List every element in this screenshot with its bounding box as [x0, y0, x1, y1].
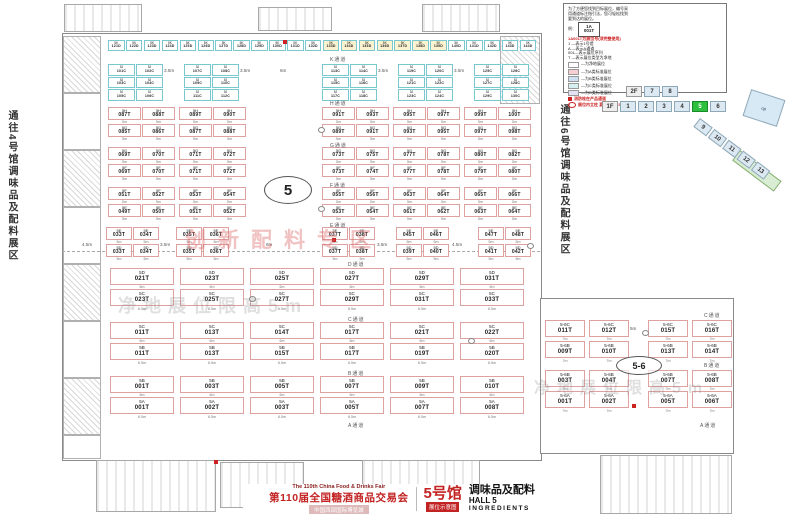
booth-number: 052T [223, 210, 235, 215]
booth: 5J104C [136, 77, 163, 89]
booth-number: 046T [430, 233, 442, 238]
booth-number: 125C [483, 70, 492, 74]
booth-number: 095T [437, 130, 449, 135]
booth: 5J106C [136, 89, 163, 101]
booth-number: 064T [508, 210, 520, 215]
booth-number: 133D [326, 45, 335, 49]
booth-number: 127C [483, 82, 492, 86]
booth: 5F054T [213, 187, 246, 200]
booth: 5-6B010T [589, 341, 629, 358]
booth: 5C025T [180, 289, 244, 306]
booth: 5F080T [498, 164, 531, 177]
booth-number: 033T [113, 233, 125, 238]
fair-titles: The 110th China Food & Drinks Fair 第110届… [269, 484, 408, 514]
aisle-label: E通道 [330, 222, 360, 229]
dim-label: 5m [142, 177, 175, 181]
booth: 5J113C [322, 64, 349, 76]
dim-label: 5m [356, 137, 389, 141]
booth-number: 051T [118, 193, 130, 198]
booth-number: 038T [356, 233, 368, 238]
dim-label: 6m [280, 68, 300, 73]
dim-label: 3.5m [164, 68, 184, 73]
type-swatch [568, 76, 579, 83]
dim-label: 7m [545, 409, 585, 413]
booth-number: 048T [512, 233, 524, 238]
booth-number: 064T [437, 193, 449, 198]
booth: 5F072T [213, 164, 246, 177]
booth: 5E053T [322, 204, 355, 217]
fair-title-cn: 第110届全国糖酒商品交易会 [269, 490, 408, 505]
booth: 5F063T [393, 187, 426, 200]
booth-number: 126C [511, 70, 520, 74]
booth-number: 054T [366, 210, 378, 215]
booth: 5H090T [213, 107, 246, 120]
booth-number: 017T [345, 351, 359, 357]
booth-number: 021T [415, 330, 429, 336]
booth: 5K142D [484, 40, 501, 51]
navigator-diagonal-halls: 910111213 [693, 118, 771, 181]
booth: 5G089T [322, 124, 355, 137]
booth: 5E063T [464, 204, 497, 217]
booth-number: 029T [345, 297, 359, 303]
booth: 5C023T [110, 289, 174, 306]
booth: 5C029T [320, 289, 384, 306]
pillar-marker [249, 296, 256, 302]
booth-number: 002T [602, 399, 616, 405]
booth-number: 036T [210, 250, 222, 255]
booth: 5G069T [108, 147, 141, 160]
dim-label: 6.5m [320, 307, 384, 311]
booth-number: 137D [398, 45, 407, 49]
booth: 5D023T [180, 268, 244, 285]
dim-label: 7m [589, 409, 629, 413]
dim-label: 5m [427, 137, 460, 141]
booth-number: 078T [437, 153, 449, 158]
booth: 5K131D [287, 40, 304, 51]
category-labels: 调味品及配料 HALL 5 INGREDIENTS [469, 485, 535, 512]
booth: 5J117C [322, 89, 349, 101]
booth: 5G080T [464, 147, 497, 160]
aisle-label: C通道 [704, 312, 732, 319]
booth: 5K122D [126, 40, 143, 51]
dim-label: 5m [322, 257, 348, 261]
booth-number: 051T [189, 210, 201, 215]
dim-label: 6.5m [180, 307, 244, 311]
booth-number: 029T [415, 276, 429, 282]
booth: 5J116C [350, 77, 377, 89]
booth-number: 015T [275, 351, 289, 357]
booth: 5D039T [396, 244, 422, 257]
hall-box-6: 6 [710, 101, 726, 112]
booth-number: 010T [485, 384, 499, 390]
booth: 5G072T [213, 147, 246, 160]
dim-label: 3.5m [240, 68, 260, 73]
booth: 5J126C [502, 64, 529, 76]
dim-label: 6.5m [460, 415, 524, 419]
booth-number: 039T [403, 250, 415, 255]
dim-label: 5m [213, 177, 246, 181]
booth: 5J109C [184, 77, 211, 89]
booth: 5-6B013T [648, 341, 688, 358]
dim-label: 5m [423, 257, 449, 261]
booth-number: 123C [407, 95, 416, 99]
booth: 5F051T [108, 187, 141, 200]
booth-number: 001T [558, 399, 572, 405]
dim-label: 6.5m [250, 415, 314, 419]
type-swatch [568, 62, 579, 69]
aisle-label: A通道 [700, 422, 728, 429]
booth: 5-6A006T [692, 391, 732, 408]
aisle-label: G通道 [330, 142, 360, 149]
booth: 5C017T [320, 322, 384, 339]
booth-number: 090T [223, 113, 235, 118]
booth: 5K132D [305, 40, 322, 51]
aisle-label: H通道 [330, 100, 360, 107]
booth-number: 129D [255, 45, 264, 49]
hall-box-5: 5 [692, 101, 708, 112]
title-block: The 110th China Food & Drinks Fair 第110届… [243, 484, 561, 514]
booth-number: 045T [403, 233, 415, 238]
legend-type: —为B类标准展位 [568, 76, 722, 83]
booth: 5G070T [142, 147, 175, 160]
booth: 5-6C012T [589, 320, 629, 337]
booth-number: 035T [183, 250, 195, 255]
pillar-marker [318, 206, 325, 212]
booth-number: 071T [189, 153, 201, 158]
booth-number: 131D [291, 45, 300, 49]
booth: 5J119C [398, 64, 425, 76]
booth-number: 098T [508, 130, 520, 135]
booth-number: 040T [430, 250, 442, 255]
booth-number: 079T [474, 170, 486, 175]
booth-number: 071T [189, 170, 201, 175]
booth: 5B005T [250, 376, 314, 393]
booth-number: 009T [558, 349, 572, 355]
booth: 5D025T [250, 268, 314, 285]
dim-label: 5m [213, 217, 246, 221]
dim-label: 3.5m [160, 242, 180, 247]
legend-type: —为A类标准展位 [568, 69, 722, 76]
booth-number: 136D [380, 45, 389, 49]
booth-number: 075T [366, 153, 378, 158]
booth-number: 042T [512, 250, 524, 255]
service-room [63, 150, 101, 207]
booth: 5K126D [198, 40, 215, 51]
booth-number: 014T [705, 349, 719, 355]
dim-label: 5m [505, 257, 531, 261]
booth: 5F069T [108, 164, 141, 177]
booth-number: 019T [415, 351, 429, 357]
pillar-marker [468, 338, 475, 344]
booth-number: 025T [275, 276, 289, 282]
dim-label: 6.5m [110, 415, 174, 419]
booth: 5K140D [448, 40, 465, 51]
dim-label: 5m [179, 137, 212, 141]
booth: 5B017T [320, 343, 384, 360]
dim-label: 5m [356, 217, 389, 221]
booth-number: 128C [511, 82, 520, 86]
booth: 5J128C [502, 77, 529, 89]
service-room [63, 321, 101, 378]
fire-hydrant-marker [332, 238, 336, 242]
booth: 5K143D [502, 40, 519, 51]
booth-number: 110C [221, 82, 230, 86]
dim-label: 7m [648, 409, 688, 413]
dim-label: 7m [545, 359, 585, 363]
booth-number: 011T [135, 351, 149, 357]
hall-box-1F: 1F [602, 101, 618, 112]
booth-number: 127D [219, 45, 228, 49]
booth: 5E035T [176, 227, 202, 240]
dim-label: 5m [142, 137, 175, 141]
exterior-structure [96, 460, 216, 512]
booth-number: 063T [403, 193, 415, 198]
booth-number: 088T [152, 113, 164, 118]
booth: 5J110C [212, 77, 239, 89]
booth-number: 111C [193, 95, 202, 99]
booth: 5C022T [460, 322, 524, 339]
booth-number: 005T [661, 399, 675, 405]
type-swatch [568, 83, 579, 90]
booth-number: 087T [189, 130, 201, 135]
dim-label: 6.5m [110, 361, 174, 365]
booth-number: 020T [485, 351, 499, 357]
dim-label: 6.5m [320, 415, 384, 419]
booth: 5E036T [203, 227, 229, 240]
booth: 5K129D [251, 40, 268, 51]
booth-number: 016T [705, 328, 719, 334]
dim-label: 5m [498, 217, 531, 221]
booth: 5G085T [108, 124, 141, 137]
booth: 5H087T [108, 107, 141, 120]
dim-label: 6.5m [180, 415, 244, 419]
booth-number: 023T [205, 276, 219, 282]
pillar-icon [568, 102, 576, 108]
booth: 5C014T [250, 322, 314, 339]
booth: 5C031T [390, 289, 454, 306]
booth: 5-6B008T [692, 370, 732, 387]
booth-number: 086T [152, 130, 164, 135]
booth: 5-6C011T [545, 320, 585, 337]
booth-number: 078T [437, 170, 449, 175]
booth-number: 072T [223, 153, 235, 158]
booth-number: 143D [505, 45, 514, 49]
booth: 5E064T [498, 204, 531, 217]
booth-number: 005T [345, 405, 359, 411]
booth: 5B007T [320, 376, 384, 393]
booth: 5C033T [460, 289, 524, 306]
divider [416, 487, 417, 511]
booth-number: 052T [152, 193, 164, 198]
booth-number: 053T [189, 193, 201, 198]
booth: 5D033T [106, 244, 132, 257]
booth-number: 074T [366, 170, 378, 175]
booth-number: 066T [508, 193, 520, 198]
booth: 5F079T [464, 164, 497, 177]
booth-number: 097T [474, 130, 486, 135]
booth: 5F053T [179, 187, 212, 200]
booth-number: 065T [474, 193, 486, 198]
booth: 5E047T [478, 227, 504, 240]
dim-label: 5m [393, 217, 426, 221]
dim-label: 6.5m [390, 415, 454, 419]
booth-number: 091T [332, 113, 344, 118]
booth-number: 093T [366, 113, 378, 118]
hall-box-8: 8 [662, 86, 678, 97]
booth: 5J105C [108, 89, 135, 101]
booth: 5F066T [498, 187, 531, 200]
booth: 5F073T [322, 164, 355, 177]
booth: 5J123C [398, 89, 425, 101]
booth: 5B013T [180, 343, 244, 360]
dim-label: 5m [179, 217, 212, 221]
booth: 5K128D [233, 40, 250, 51]
dim-label: 5m [176, 257, 202, 261]
booth: 5G088T [213, 124, 246, 137]
hall-5-marker: 5 [264, 176, 312, 204]
booth: 5A008T [460, 397, 524, 414]
booth: 5F070T [142, 164, 175, 177]
booth-number: 072T [223, 170, 235, 175]
dim-label: 5m [179, 177, 212, 181]
booth: 5-6B009T [545, 341, 585, 358]
corridor-label-left: 通往4号馆调味品及配料展区 [4, 110, 19, 262]
legend-example: 例：1A001T [568, 22, 722, 37]
fire-hydrant-marker [214, 460, 218, 464]
booth-number: 063T [474, 210, 486, 215]
dim-label: 6.5m [460, 361, 524, 365]
booth-number: 037T [329, 250, 341, 255]
booth: 5G077T [393, 147, 426, 160]
booth: 5D041T [478, 244, 504, 257]
dim-label: 6.5m [320, 361, 384, 365]
booth-number: 128D [237, 45, 246, 49]
dim-label: 5m [133, 257, 159, 261]
legend-box: 为了方便您找到目标展位，编号采用通道标注指引法，您可轻松找到要到达的展位。例：1… [563, 3, 727, 93]
exterior-structure [258, 7, 332, 31]
booth: 5-6C015T [648, 320, 688, 337]
booth: 5G091T [356, 124, 389, 137]
aisle-label: B通道 [704, 362, 732, 369]
booth-number: 112C [221, 95, 230, 99]
booth: 5D027T [320, 268, 384, 285]
hall-label: 5号馆 展位示意图 [424, 486, 462, 512]
booth-number: 099T [474, 113, 486, 118]
booth-number: 007T [415, 405, 429, 411]
dim-label: 5m [396, 257, 422, 261]
fire-hydrant-marker [632, 404, 636, 408]
booth: 5G095T [427, 124, 460, 137]
map-label: 展位示意图 [426, 502, 460, 512]
booth-number: 041T [485, 250, 497, 255]
booth: 5D040T [423, 244, 449, 257]
dim-label: 5m [464, 177, 497, 181]
dim-label: 5m [498, 137, 531, 141]
booth: 5A003T [250, 397, 314, 414]
booth: 5F064T [427, 187, 460, 200]
booth-number: 122D [130, 45, 139, 49]
exterior-structure [64, 4, 142, 32]
category-en: INGREDIENTS [469, 505, 535, 512]
booth: 5J101C [108, 64, 135, 76]
booth-number: 070T [152, 170, 164, 175]
booth-number: 003T [205, 384, 219, 390]
booth-number: 118C [359, 95, 368, 99]
booth: 5K135D [359, 40, 376, 51]
aisle-label: D通道 [348, 261, 378, 268]
service-room [63, 435, 101, 459]
booth: 5G075T [356, 147, 389, 160]
booth-number: 080T [474, 153, 486, 158]
floor-plan: 通往4号馆调味品及配料展区 通往6号馆调味品及配料展区 5 5-6 5m 创新配… [0, 0, 798, 516]
booth: 5D031T [460, 268, 524, 285]
booth-number: 125D [183, 45, 192, 49]
booth-number: 132D [309, 45, 318, 49]
booth: 5E034T [133, 227, 159, 240]
dim-label: 6.5m [390, 361, 454, 365]
dim-label: 5m [427, 217, 460, 221]
booth: 5D038T [349, 244, 375, 257]
venue-label: 中国西部国际博览城 [309, 505, 369, 514]
aisle-label: B通道 [348, 370, 378, 377]
booth-number: 089T [332, 130, 344, 135]
booth: 5H091T [322, 107, 355, 120]
booth: 5-6A002T [589, 391, 629, 408]
booth-number: 115C [331, 82, 340, 86]
dim-label: 5m [108, 137, 141, 141]
booth-number: 097T [437, 113, 449, 118]
booth-number: 012T [602, 328, 616, 334]
dim-label: 5m [108, 177, 141, 181]
booth-number: 091T [366, 130, 378, 135]
service-room [63, 207, 101, 264]
dim-label: 5m [464, 217, 497, 221]
booth-number: 134D [344, 45, 353, 49]
booth-number: 109C [193, 82, 202, 86]
booth-number: 069T [118, 153, 130, 158]
booth: 5C013T [180, 322, 244, 339]
booth-number: 056T [366, 193, 378, 198]
booth-number: 013T [661, 349, 675, 355]
booth-number: 009T [415, 384, 429, 390]
booth: 5-6B014T [692, 341, 732, 358]
dim-label: 5m [393, 137, 426, 141]
booth: 5E062T [427, 204, 460, 217]
booth: 5K124D [162, 40, 179, 51]
booth-number: 144D [523, 45, 532, 49]
booth: 5B020T [460, 343, 524, 360]
booth-number: 122C [435, 82, 444, 86]
booth: 5E045T [396, 227, 422, 240]
booth: 5G097T [464, 124, 497, 137]
booth-number: 011T [558, 328, 572, 334]
booth: 5H097T [427, 107, 460, 120]
booth-number: 007T [345, 384, 359, 390]
booth: 5K127D [215, 40, 232, 51]
booth-number: 015T [661, 328, 675, 334]
booth-number: 008T [485, 405, 499, 411]
booth-number: 105C [117, 95, 126, 99]
booth: 5J129C [474, 89, 501, 101]
booth: 5G098T [498, 124, 531, 137]
dim-label: 3.5m [378, 68, 398, 73]
booth: 5G078T [427, 147, 460, 160]
service-room [63, 264, 101, 321]
booth-number: 013T [205, 351, 219, 357]
booth-number: 085T [118, 130, 130, 135]
booth-number: 088T [223, 130, 235, 135]
booth-number: 022T [485, 330, 499, 336]
